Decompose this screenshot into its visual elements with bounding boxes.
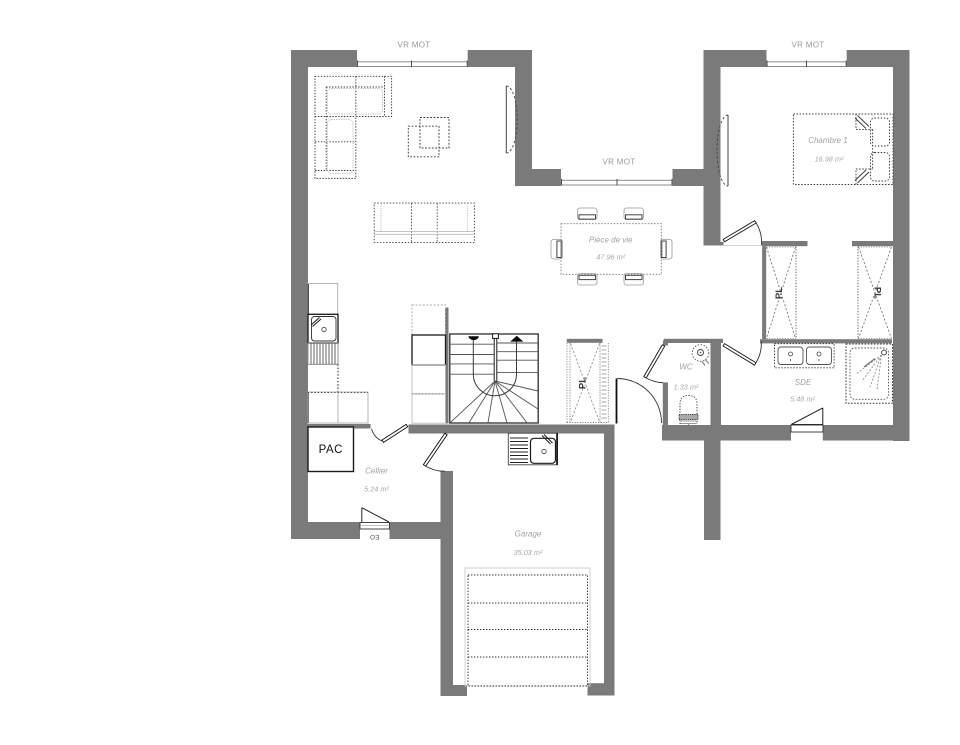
svg-text:Garage: Garage [515,530,542,539]
svg-text:5.48 m²: 5.48 m² [790,395,815,404]
svg-text:WC: WC [679,363,693,372]
svg-text:1.33 m²: 1.33 m² [674,383,699,392]
svg-text:47.96 m²: 47.96 m² [596,253,625,262]
svg-text:5.24 m²: 5.24 m² [364,485,389,494]
svg-text:Pièce de vie: Pièce de vie [589,236,633,245]
svg-text:35.03 m²: 35.03 m² [514,548,543,557]
svg-text:Cellier: Cellier [365,467,388,476]
svg-text:PL: PL [578,377,589,389]
svg-text:16.98 m²: 16.98 m² [815,155,844,164]
svg-text:PL: PL [872,287,883,299]
svg-text:PL: PL [774,287,785,299]
svg-text:PAC: PAC [319,444,343,456]
svg-text:VR MOT: VR MOT [398,41,431,50]
svg-text:SDE: SDE [795,378,812,387]
svg-text:EO: EO [370,533,379,540]
svg-text:VR MOT: VR MOT [603,158,636,167]
svg-text:VR MOT: VR MOT [792,41,825,50]
svg-text:Chambre 1: Chambre 1 [808,136,848,145]
